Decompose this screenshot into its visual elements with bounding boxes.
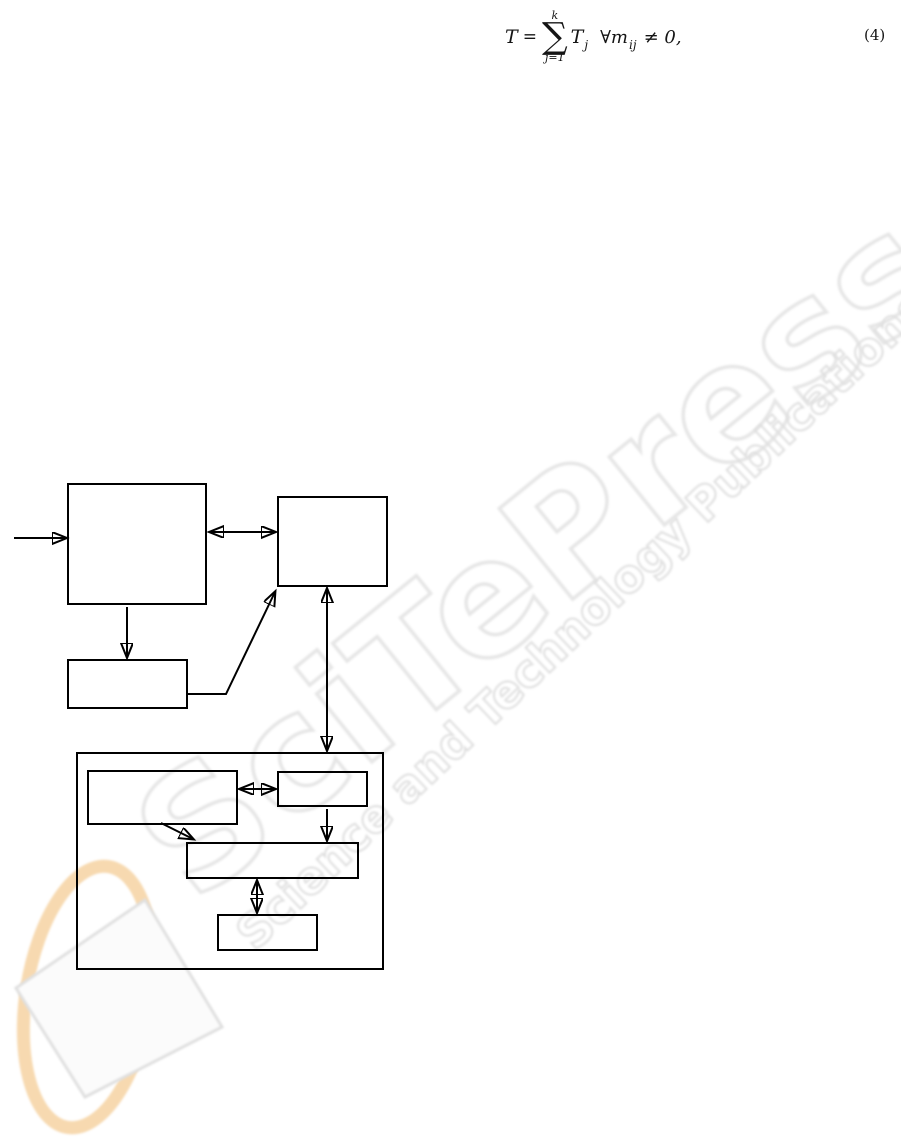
- equation-number: (4): [864, 26, 885, 44]
- summation: k ∑ j=1: [542, 10, 568, 64]
- diagram-inner-box-right: [277, 771, 368, 807]
- equation-condition-subscript: ij: [629, 38, 637, 52]
- diagram-box-sub: [67, 659, 188, 709]
- paper-page: SciTePress Science and Technology Public…: [0, 0, 901, 1145]
- equation-term-subscript: j: [584, 38, 588, 52]
- arrow-sub-to-right-connector: [187, 592, 275, 694]
- equation-rhs: ≠ 0,: [644, 27, 682, 48]
- equation-condition-var: ∀m: [600, 27, 628, 48]
- equation-condition: ∀mij: [600, 27, 637, 48]
- equation-lhs: T: [505, 26, 518, 48]
- equation-term-var: T: [571, 26, 584, 48]
- diagram-inner-box-left: [87, 770, 238, 825]
- diagram-inner-box-middle: [186, 842, 359, 879]
- equation-term: Tj: [571, 26, 588, 48]
- summation-lower-limit: j=1: [545, 52, 565, 64]
- sigma-symbol: ∑: [542, 22, 568, 52]
- diagram-box-main: [67, 483, 207, 605]
- equation-equals: =: [523, 27, 537, 47]
- equation-4: T = k ∑ j=1 Tj ∀mij ≠ 0,: [505, 0, 682, 74]
- diagram-box-right: [277, 496, 388, 587]
- diagram-inner-box-bottom: [217, 914, 318, 951]
